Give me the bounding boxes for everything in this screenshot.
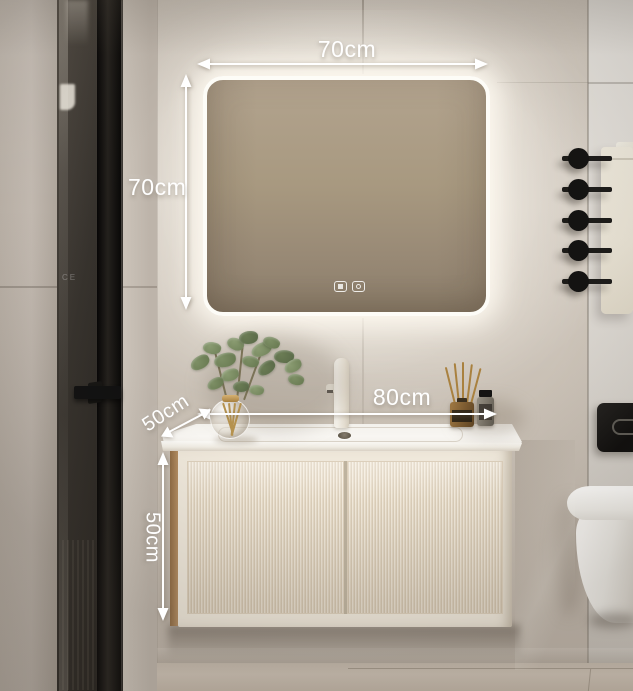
- power-icon[interactable]: [352, 281, 365, 292]
- toilet-seat: [567, 486, 633, 520]
- mirror-height-label: 70cm: [128, 174, 186, 201]
- toilet-floor-shadow: [589, 613, 633, 628]
- tile-grout-horizontal: [588, 82, 633, 84]
- glass-cabinet-reflection: [62, 540, 96, 690]
- vase-collar: [222, 395, 239, 402]
- cabinet-door-gap: [344, 461, 347, 614]
- flush-button[interactable]: [612, 419, 633, 435]
- mirror-touch-controls: [334, 281, 365, 292]
- towel-bar-mount: [568, 179, 589, 200]
- bathroom-product-photo: CE 70cm 70c: [0, 0, 633, 691]
- led-mirror: [203, 76, 490, 316]
- towel-bar-mount: [568, 271, 589, 292]
- glass-reflection: [60, 84, 75, 110]
- small-bottle-label: [479, 404, 492, 420]
- towel-front: [601, 147, 633, 314]
- ce-marking: CE: [62, 273, 77, 282]
- left-wall-shade: [0, 0, 57, 691]
- cabinet-door-left[interactable]: [187, 461, 344, 614]
- vanity-width-label: 80cm: [368, 384, 436, 411]
- glass-reflection-top: [66, 0, 88, 46]
- cabinet-shadow: [168, 625, 520, 659]
- wall-strip-seam: [120, 286, 157, 288]
- towel-bar-mount: [568, 210, 589, 231]
- small-bottle-cap: [479, 390, 492, 397]
- towel-bar-mount: [568, 148, 589, 169]
- counter-side-shadow: [515, 440, 575, 670]
- diffuser-label: [452, 410, 472, 422]
- left-wall-seam: [0, 286, 57, 288]
- sink-drain: [338, 432, 351, 439]
- shower-door-handle[interactable]: [74, 386, 121, 399]
- wall-strip: [120, 0, 157, 691]
- shower-frame: [97, 0, 121, 691]
- towel-bar-mount: [568, 240, 589, 261]
- mirror-width-label: 70cm: [313, 36, 381, 63]
- defog-icon[interactable]: [334, 281, 347, 292]
- cabinet-height-label: 50cm: [141, 512, 164, 564]
- cabinet-door-right[interactable]: [347, 461, 503, 614]
